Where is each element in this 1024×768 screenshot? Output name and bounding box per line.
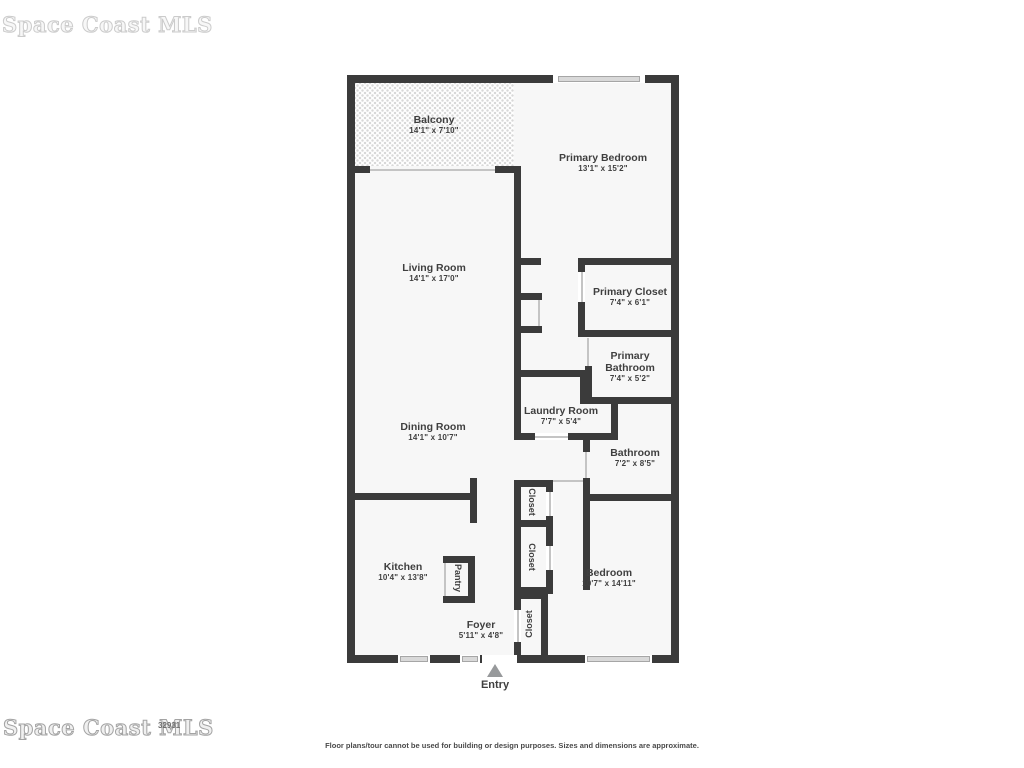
- door-line: [535, 436, 568, 438]
- room-dims: 7'4" x 6'1": [593, 298, 667, 308]
- room-label-foyer: Foyer 5'11" x 4'8": [459, 619, 504, 641]
- wall: [578, 330, 679, 337]
- watermark-zip: 32931: [158, 721, 180, 730]
- room-label-closet-3: Closet: [524, 610, 534, 638]
- room-dims: 14'1" x 7'10": [409, 126, 459, 136]
- room-name: Living Room: [402, 262, 466, 274]
- room-label-primary-closet: Primary Closet 7'4" x 6'1": [593, 286, 667, 308]
- room-label-primary-bedroom: Primary Bedroom 13'1" x 15'2": [559, 152, 647, 174]
- wall: [671, 75, 679, 663]
- wall: [580, 397, 679, 404]
- hall-opening-line: [553, 480, 583, 482]
- room-name: Bedroom: [582, 567, 636, 579]
- entry-label: Entry: [481, 679, 509, 691]
- wall: [514, 166, 521, 440]
- entry-opening: [482, 655, 517, 663]
- room-label-dining: Dining Room 14'1" x 10'7": [400, 421, 465, 443]
- wall: [347, 493, 477, 500]
- door-line: [444, 563, 446, 596]
- room-dims: 7'2" x 8'5": [610, 459, 660, 469]
- wall: [585, 366, 592, 404]
- floor-plan: Balcony 14'1" x 7'10" Primary Bedroom 13…: [0, 0, 1024, 768]
- wall: [514, 480, 521, 590]
- room-label-closet-2: Closet: [527, 543, 537, 571]
- room-label-pantry: Pantry: [453, 564, 463, 592]
- room-name: Bathroom: [605, 362, 655, 374]
- disclaimer-text: Floor plans/tour cannot be used for buil…: [325, 741, 699, 750]
- wall: [514, 258, 541, 265]
- room-label-bathroom: Bathroom 7'2" x 8'5": [610, 447, 660, 469]
- wall: [353, 166, 370, 173]
- room-name: Primary Closet: [593, 286, 667, 298]
- room-dims: 10'4" x 13'8": [378, 573, 428, 583]
- room-name: Primary: [605, 350, 655, 362]
- balcony-slider-line: [370, 169, 495, 171]
- door-line: [538, 300, 540, 326]
- room-dims: 10'7" x 14'11": [582, 579, 636, 589]
- watermark-top: Space Coast MLS: [2, 12, 213, 37]
- wall: [347, 75, 355, 663]
- door-line: [581, 272, 583, 302]
- room-label-balcony: Balcony 14'1" x 7'10": [409, 114, 459, 136]
- window: [462, 656, 478, 662]
- room-label-closet-1: Closet: [527, 488, 537, 516]
- wall: [583, 440, 590, 452]
- door-line: [549, 492, 551, 516]
- room-dims: 13'1" x 15'2": [559, 164, 647, 174]
- door-line: [517, 610, 519, 642]
- wall: [514, 370, 587, 377]
- window: [558, 76, 640, 82]
- room-name: Primary Bedroom: [559, 152, 647, 164]
- room-name: Dining Room: [400, 421, 465, 433]
- room-dims: 14'1" x 10'7": [400, 433, 465, 443]
- room-dims: 7'4" x 5'2": [605, 374, 655, 384]
- wall: [521, 293, 542, 300]
- window: [587, 656, 650, 662]
- room-dims: 14'1" x 17'0": [402, 274, 466, 284]
- room-label-kitchen: Kitchen 10'4" x 13'8": [378, 561, 428, 583]
- watermark-bottom: Space Coast MLS: [3, 715, 214, 740]
- room-name: Bathroom: [610, 447, 660, 459]
- room-label-primary-bathroom: Primary Bathroom 7'4" x 5'2": [605, 350, 655, 384]
- room-name: Laundry Room: [524, 405, 598, 417]
- door-line: [587, 338, 589, 366]
- door-line: [549, 546, 551, 570]
- wall: [521, 326, 542, 333]
- entry-arrow-icon: [487, 664, 503, 677]
- room-dims: 5'11" x 4'8": [459, 631, 504, 641]
- room-label-laundry: Laundry Room 7'7" x 5'4": [524, 405, 598, 427]
- room-dims: 7'7" x 5'4": [524, 417, 598, 427]
- room-label-bedroom: Bedroom 10'7" x 14'11": [582, 567, 636, 589]
- wall: [541, 592, 548, 655]
- room-name: Kitchen: [378, 561, 428, 573]
- wall: [514, 520, 553, 527]
- room-name: Balcony: [409, 114, 459, 126]
- door-line: [585, 452, 587, 478]
- room-name: Foyer: [459, 619, 504, 631]
- wall: [578, 258, 679, 265]
- room-label-living: Living Room 14'1" x 17'0": [402, 262, 466, 284]
- wall: [443, 596, 475, 603]
- wall: [470, 478, 477, 523]
- wall: [583, 494, 679, 501]
- wall: [495, 166, 514, 173]
- window: [400, 656, 428, 662]
